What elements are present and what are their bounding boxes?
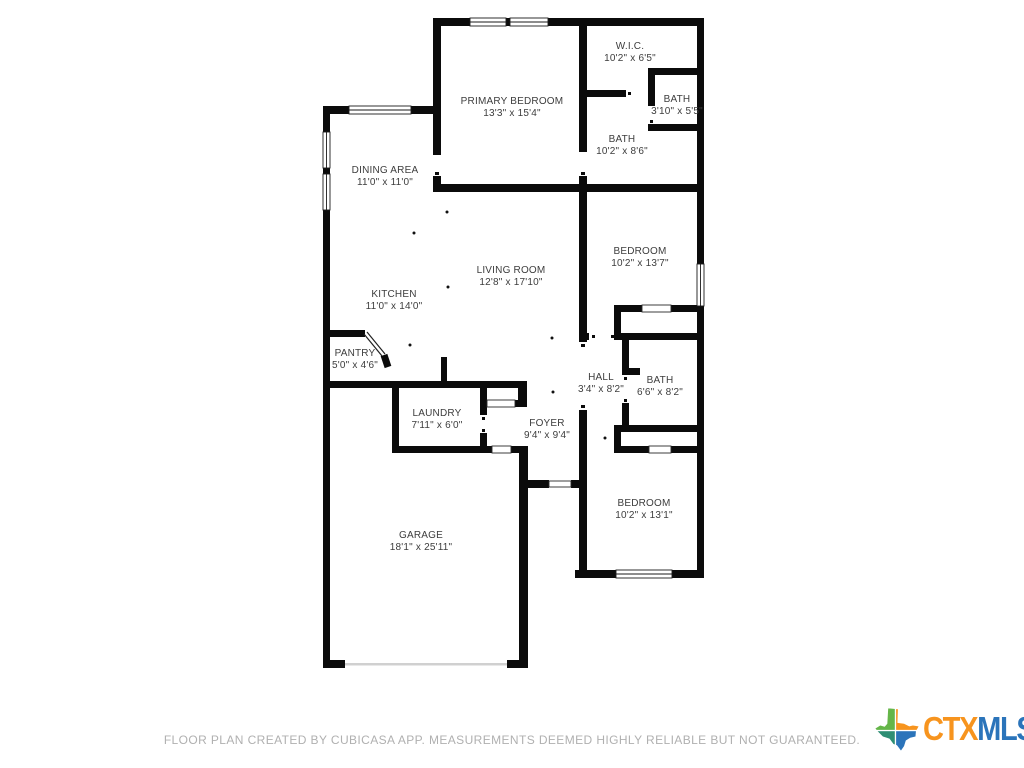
mls-text: MLS <box>977 710 1024 747</box>
texas-icon <box>874 707 920 751</box>
room-label-bedroom-1: BEDROOM 10'2" x 13'7" <box>611 246 668 270</box>
ctxmls-wordmark: CTXMLS <box>923 707 1024 751</box>
room-label-kitchen: KITCHEN 11'0" x 14'0" <box>366 289 423 313</box>
room-label-dining-area: DINING AREA 11'0" x 11'0" <box>352 165 419 189</box>
room-label-primary-bedroom: PRIMARY BEDROOM 13'3" x 15'4" <box>461 96 564 120</box>
room-label-laundry: LAUNDRY 7'11" x 6'0" <box>412 408 463 432</box>
room-label-bedroom-2: BEDROOM 10'2" x 13'1" <box>615 498 672 522</box>
room-label-bath-small: BATH 3'10" x 5'5" <box>651 94 703 118</box>
garage-door-line <box>345 663 507 666</box>
room-label-bath-primary: BATH 10'2" x 8'6" <box>596 134 648 158</box>
room-label-wic: W.I.C. 10'2" x 6'5" <box>604 41 656 65</box>
room-label-living-room: LIVING ROOM 12'8" x 17'10" <box>477 265 546 289</box>
room-label-hall: HALL 3'4" x 8'2" <box>578 372 624 396</box>
ctxmls-logo: CTXMLS <box>874 707 1024 751</box>
room-label-bath-hall: BATH 6'6" x 8'2" <box>637 375 683 399</box>
floor-plan-canvas: PRIMARY BEDROOM 13'3" x 15'4" W.I.C. 10'… <box>0 0 1024 768</box>
room-label-garage: GARAGE 18'1" x 25'11" <box>390 530 452 554</box>
disclaimer-text: FLOOR PLAN CREATED BY CUBICASA APP. MEAS… <box>0 733 1024 747</box>
room-label-foyer: FOYER 9'4" x 9'4" <box>524 418 570 442</box>
room-label-pantry: PANTRY 5'0" x 4'6" <box>332 348 378 372</box>
ctx-text: CTX <box>923 710 977 747</box>
